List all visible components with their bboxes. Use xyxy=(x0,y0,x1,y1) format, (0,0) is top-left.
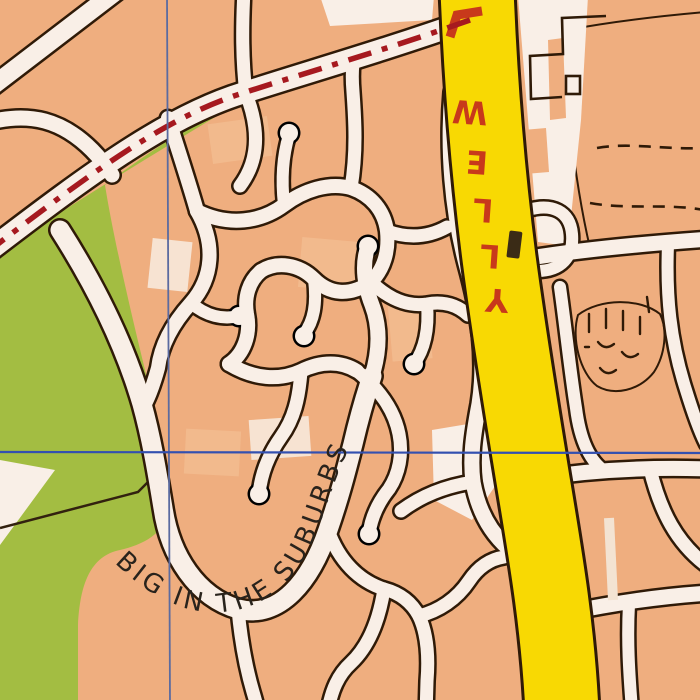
road-label-letter: Y xyxy=(483,280,511,320)
road-label-letter: L xyxy=(479,236,502,275)
map-canvas: W E L L Y BIG IN THE SUBURBS xyxy=(0,0,700,700)
road-label-letter: W xyxy=(451,92,489,132)
road-label-letter: E xyxy=(465,142,489,181)
road-label-letter: L xyxy=(472,190,495,229)
minor-track xyxy=(609,518,613,600)
